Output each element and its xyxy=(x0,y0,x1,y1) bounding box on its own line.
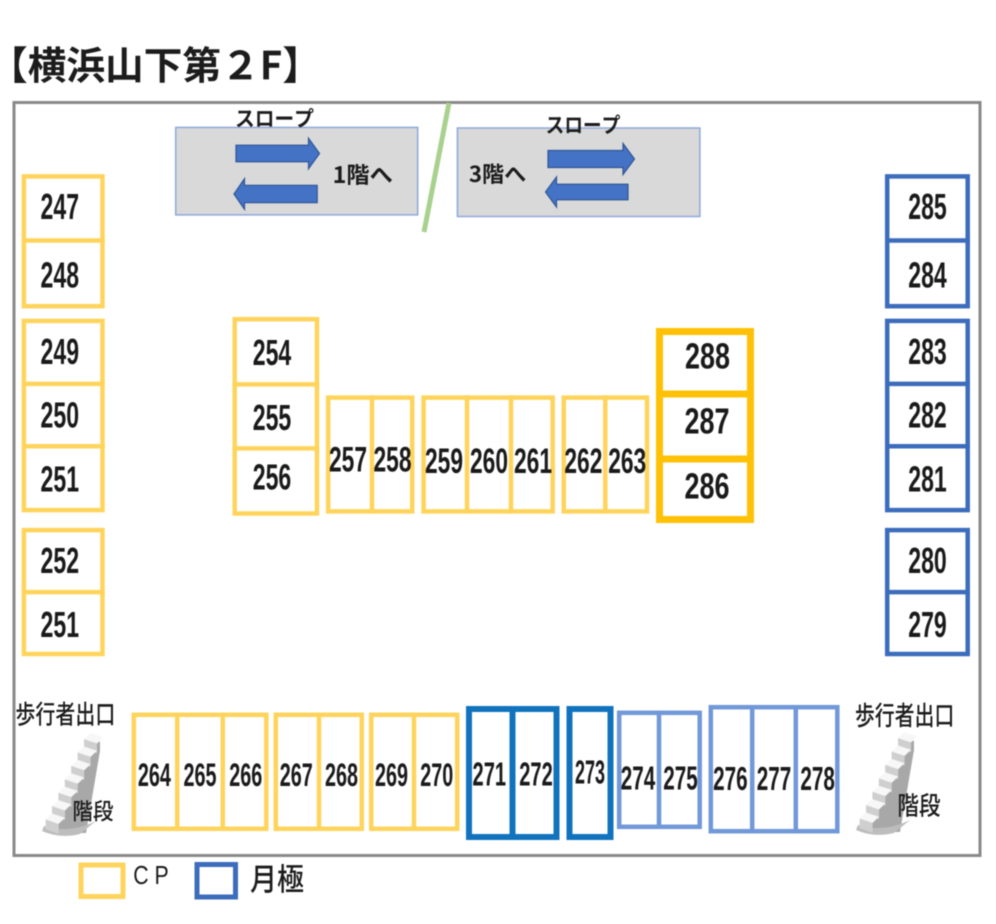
svg-text:C P: C P xyxy=(133,860,169,890)
svg-text:270: 270 xyxy=(420,756,453,793)
svg-text:271: 271 xyxy=(473,757,507,794)
svg-text:260: 260 xyxy=(470,442,508,481)
svg-text:281: 281 xyxy=(908,459,947,500)
svg-text:274: 274 xyxy=(621,761,656,798)
svg-text:279: 279 xyxy=(908,604,947,645)
svg-text:263: 263 xyxy=(608,442,646,481)
svg-text:255: 255 xyxy=(253,397,292,438)
svg-text:288: 288 xyxy=(685,336,730,377)
svg-text:257: 257 xyxy=(329,441,367,480)
svg-text:268: 268 xyxy=(325,756,358,793)
svg-text:275: 275 xyxy=(663,761,698,798)
svg-text:261: 261 xyxy=(514,442,552,481)
svg-text:264: 264 xyxy=(138,756,171,793)
svg-text:248: 248 xyxy=(41,255,80,296)
svg-text:258: 258 xyxy=(374,441,412,480)
svg-text:250: 250 xyxy=(41,395,80,436)
svg-text:283: 283 xyxy=(908,331,947,372)
svg-text:273: 273 xyxy=(575,755,605,792)
svg-text:278: 278 xyxy=(800,761,835,798)
svg-text:284: 284 xyxy=(908,255,947,296)
svg-text:282: 282 xyxy=(908,395,947,436)
svg-text:262: 262 xyxy=(564,442,602,481)
svg-text:286: 286 xyxy=(685,466,730,507)
svg-text:265: 265 xyxy=(184,756,217,793)
svg-text:259: 259 xyxy=(425,442,463,481)
svg-text:266: 266 xyxy=(229,756,262,793)
svg-text:287: 287 xyxy=(685,401,730,442)
svg-text:251: 251 xyxy=(41,604,80,645)
svg-text:272: 272 xyxy=(519,757,553,794)
svg-text:256: 256 xyxy=(253,457,292,498)
svg-text:252: 252 xyxy=(41,540,80,581)
svg-text:280: 280 xyxy=(908,540,947,581)
svg-text:249: 249 xyxy=(41,331,80,372)
svg-text:269: 269 xyxy=(375,756,408,793)
svg-text:267: 267 xyxy=(280,756,313,793)
svg-text:285: 285 xyxy=(908,186,947,227)
svg-text:247: 247 xyxy=(41,186,80,227)
svg-text:276: 276 xyxy=(713,761,748,798)
svg-text:251: 251 xyxy=(41,459,80,500)
svg-text:277: 277 xyxy=(757,761,792,798)
svg-text:254: 254 xyxy=(253,332,292,373)
